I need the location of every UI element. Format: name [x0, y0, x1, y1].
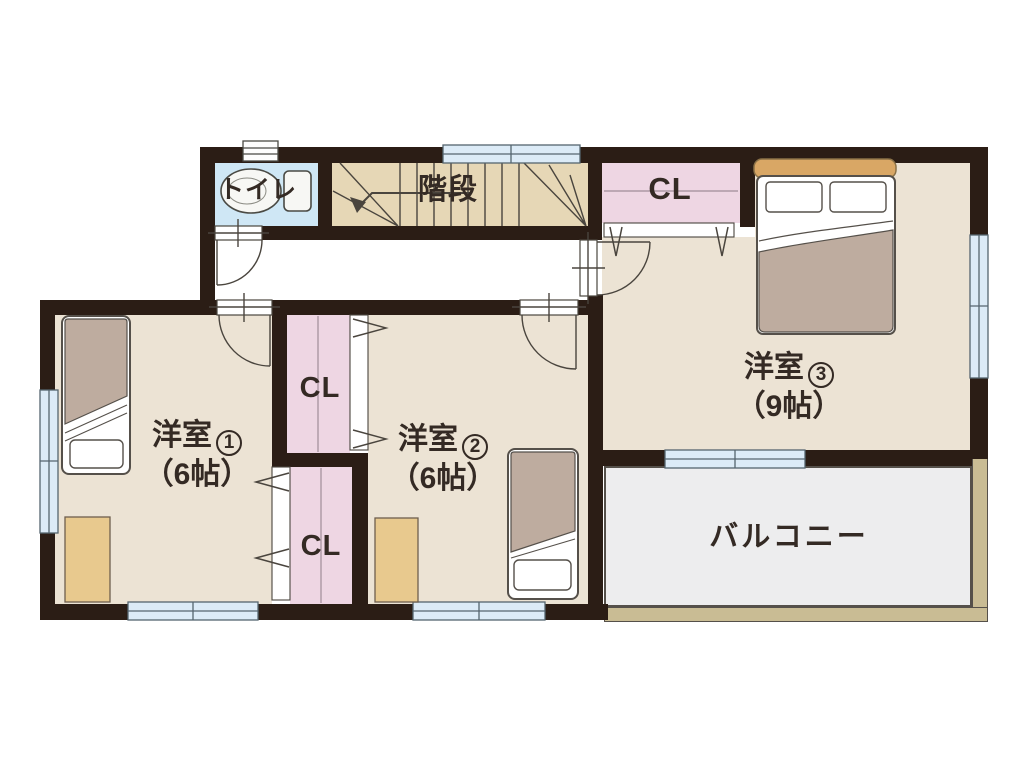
wall-segment: [588, 295, 603, 315]
room2-size: （6帖）: [341, 460, 545, 497]
room2-label: 洋室2 （6帖）: [341, 421, 545, 497]
room3-size: （9帖）: [687, 388, 891, 425]
wall-segment: [588, 315, 603, 620]
wall-segment: [588, 147, 602, 240]
room1-label: 洋室1 （6帖）: [95, 417, 299, 493]
room1-number-badge: 1: [216, 430, 242, 456]
wall-segment: [40, 300, 55, 620]
wall-segment: [740, 147, 755, 227]
hall-closet-label: CL: [628, 171, 712, 207]
room2-number-badge: 2: [462, 434, 488, 460]
wall-segment: [272, 300, 520, 315]
wall-segment: [603, 450, 665, 466]
toilet-door: [208, 219, 269, 285]
room1-closet-label: CL: [289, 530, 353, 563]
room2-closet-label: CL: [288, 372, 352, 405]
room3-name-line: 洋室3: [687, 349, 891, 388]
room1-name-line: 洋室1: [95, 417, 299, 456]
wall-segment: [805, 450, 972, 466]
wall-segment: [318, 160, 332, 240]
balcony-edge-right: [972, 452, 988, 622]
wall-segment: [262, 226, 602, 240]
wall-segment: [40, 300, 217, 315]
wall-segment: [200, 147, 215, 303]
room2-name-line: 洋室2: [341, 421, 545, 460]
balcony-edge-bottom: [604, 607, 988, 622]
stairs-label: 階段: [393, 174, 503, 207]
room3-label: 洋室3 （9帖）: [687, 349, 891, 425]
wall-segment: [200, 226, 215, 240]
toilet-label: トイレ: [206, 176, 310, 205]
room1-size: （6帖）: [95, 456, 299, 493]
floorplan-canvas: トイレ 階段 CL CL CL バルコニー 洋室1 （6帖） 洋室2 （6帖） …: [0, 0, 1024, 768]
room3-number-badge: 3: [808, 362, 834, 388]
balcony-label: バルコニー: [637, 521, 941, 554]
wall-segment: [40, 604, 608, 620]
wall-segment: [970, 147, 988, 459]
